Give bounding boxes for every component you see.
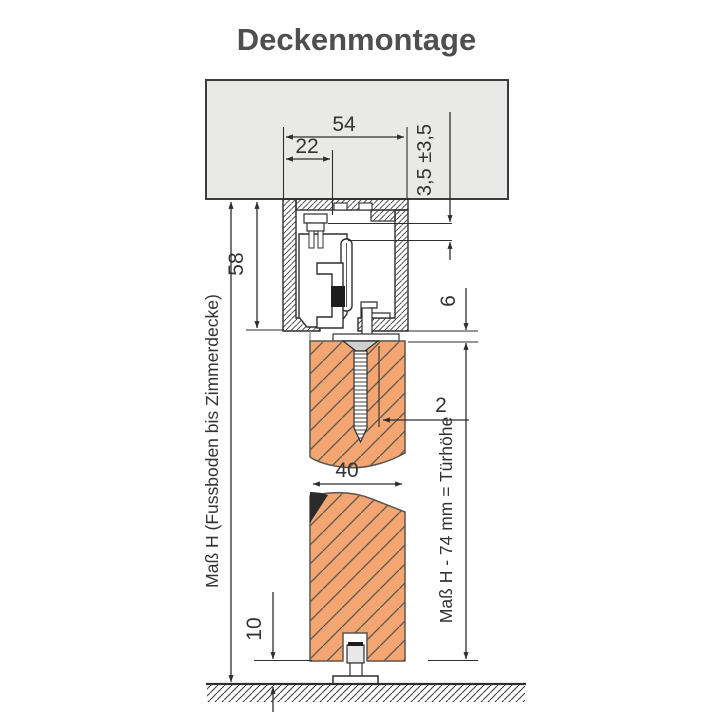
- dim-6-label: 6: [437, 295, 460, 307]
- dimension-mass-h-right: Maß H - 74 mm = Türhöhe: [428, 343, 478, 661]
- track-top-notch-left: [334, 203, 347, 210]
- dim-10-label: 10: [243, 617, 266, 640]
- hanger-strap: [362, 308, 372, 335]
- guide-base-plate: [333, 676, 378, 684]
- floor-hatch: [207, 685, 525, 702]
- dim-mass-h-right-label: Maß H - 74 mm = Türhöhe: [436, 417, 456, 623]
- adjustment-bolt-nut: [307, 223, 324, 231]
- door-lower-section: [310, 493, 405, 661]
- dim-40-label: 40: [335, 459, 358, 482]
- dim-mass-h-left-label: Maß H (Fussboden bis Zimmerdecke): [202, 294, 222, 588]
- dim-2-label: 2: [435, 394, 447, 417]
- adjustment-bolt-head: [304, 214, 327, 223]
- dimension-58: 58: [225, 202, 284, 330]
- dimension-6: 6: [408, 288, 478, 342]
- dim-3-5-label: 3,5 ±3,5: [414, 124, 436, 196]
- axle-block: [331, 286, 345, 307]
- bolt-stud-right: [318, 231, 323, 248]
- screw-thread: [354, 351, 367, 442]
- hanger-plate: [333, 334, 399, 341]
- guide-stem: [350, 663, 362, 677]
- dim-58-label: 58: [225, 252, 248, 275]
- track-clamp-insert: [371, 210, 395, 221]
- track-top-wall: [296, 199, 408, 210]
- ceiling-slab: [206, 80, 508, 199]
- technical-drawing: 54 22 3,5 ±3,5 58 Maß H (Fussboden bis Z…: [0, 0, 713, 713]
- ceiling-mount-diagram: Deckenmontage: [0, 0, 713, 713]
- dim-54-label: 54: [332, 113, 356, 136]
- floor: [206, 684, 526, 702]
- bolt-stud-left: [309, 231, 314, 248]
- track-top-notch-right: [359, 203, 372, 210]
- guide-roller: [347, 645, 364, 663]
- guide-roller-cap: [348, 642, 363, 646]
- track-profile: [283, 199, 408, 341]
- dim-22-label: 22: [295, 135, 318, 158]
